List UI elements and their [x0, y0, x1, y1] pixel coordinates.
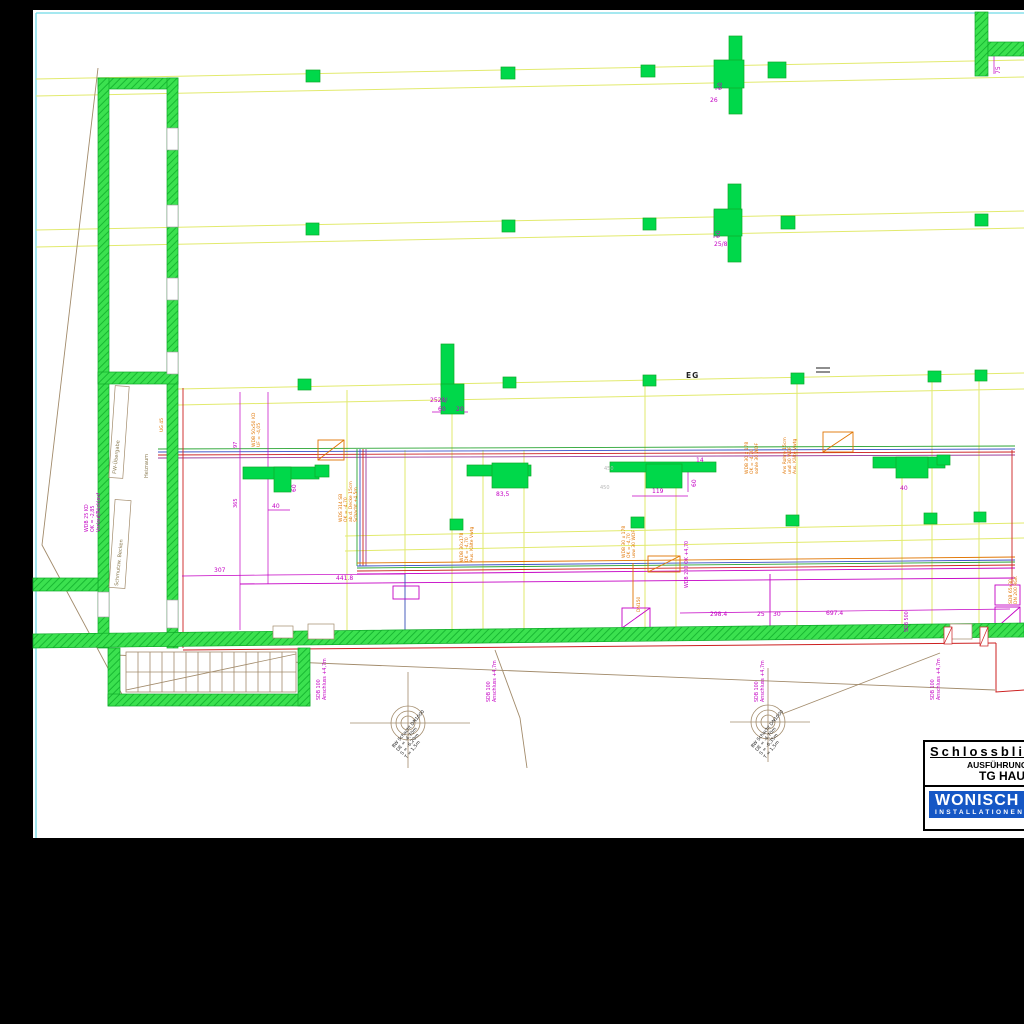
pipe-note: Aus. Kälte Vwtg — [469, 526, 475, 562]
dim-label: 365 — [233, 498, 239, 508]
dim-label: 40 — [900, 485, 908, 492]
dim-label: 26 — [710, 97, 718, 104]
wall-label: SDB 100 — [486, 681, 492, 702]
dim-label: 25 — [757, 611, 765, 618]
wall-label: SDB 500 — [904, 611, 910, 632]
dim-label: 14 — [696, 457, 704, 464]
pipe-note: Schacht +4,5m — [353, 487, 359, 522]
dim-label: 60 — [717, 82, 724, 90]
title-block: Schlossblick AUSFÜHRUNG TG HAUS WONISCH … — [923, 740, 1024, 831]
drawing-name: TG HAUS — [979, 770, 1024, 783]
dim-label: 30 — [773, 611, 781, 618]
dim-label: 2528/ — [430, 397, 448, 404]
dim-label-gray: 450 — [604, 466, 614, 472]
wall-label: Vorlauf/Rücklauf — [96, 493, 102, 532]
dim-label: 697.4 — [826, 610, 843, 617]
dim-label-gray: 450 — [600, 485, 610, 491]
project-title: Schlossblick — [925, 742, 1024, 760]
dim-label: 119 — [652, 488, 664, 495]
wall-label: WDB 200 OK +4,70 — [684, 541, 690, 588]
wall-label: Anschluss +4,7m — [322, 658, 328, 700]
dim-label: 25/8 — [714, 241, 728, 248]
staircase — [126, 652, 296, 692]
dim-label: 307 — [214, 567, 226, 574]
dim-label: 83,5 — [496, 491, 510, 498]
pipe-note: usw 30 WDF — [631, 530, 637, 558]
dim-label: 20 — [456, 406, 464, 413]
pipe-note: Aus. Kälte Vwtg — [792, 438, 798, 474]
wall-label: Anschluss +4,7m — [760, 660, 766, 702]
dim-label: 60 — [438, 406, 446, 413]
dim-label: 75 — [995, 66, 1002, 74]
dim-label: 441.8 — [336, 575, 353, 582]
pipe-note: sohle 30 WDF — [754, 443, 760, 474]
wall-label: SDB 100 — [930, 679, 936, 700]
company-logo: WONISCH INSTALLATIONEN — [929, 791, 1024, 819]
floor-plan-canvas: EG FW-Übergabe Heizraum Schmutzw. Becken… — [0, 0, 1024, 1024]
dim-label: 60 — [715, 230, 722, 238]
company-name: WONISCH — [935, 793, 1024, 810]
room-label-heizraum: Heizraum — [144, 454, 150, 478]
wall-label: Anschluss +4,7m — [492, 660, 498, 702]
pipe-note: UG 45 — [159, 418, 165, 432]
wall-label: WDB 25 KD — [84, 504, 90, 532]
wall-label: SDB 100 — [754, 681, 760, 702]
axis-label-eg: EG — [686, 371, 699, 380]
wall-label: Anschluss +4,7m — [936, 658, 942, 700]
pipe-note: UF = -4,05 — [256, 423, 262, 447]
dim-label: 60 — [291, 484, 298, 492]
company-subtitle: INSTALLATIONEN — [935, 809, 1024, 816]
dim-label: 40 — [272, 503, 280, 510]
dim-label: 60 — [691, 479, 698, 487]
cad-plan-viewport: EG FW-Übergabe Heizraum Schmutzw. Becken… — [0, 0, 1024, 1024]
title-block-divider — [925, 785, 1024, 787]
pipe-note: DN150 — [636, 596, 642, 612]
dim-label: 298.4 — [710, 611, 727, 618]
wall-label: SDB 100 — [316, 679, 322, 700]
dim-label: 97 — [233, 442, 239, 448]
pipe-note: DN 200 RGK — [1013, 575, 1019, 604]
drawing-sheet — [33, 10, 1024, 838]
wall-label: OK = -2,85 — [90, 506, 96, 532]
